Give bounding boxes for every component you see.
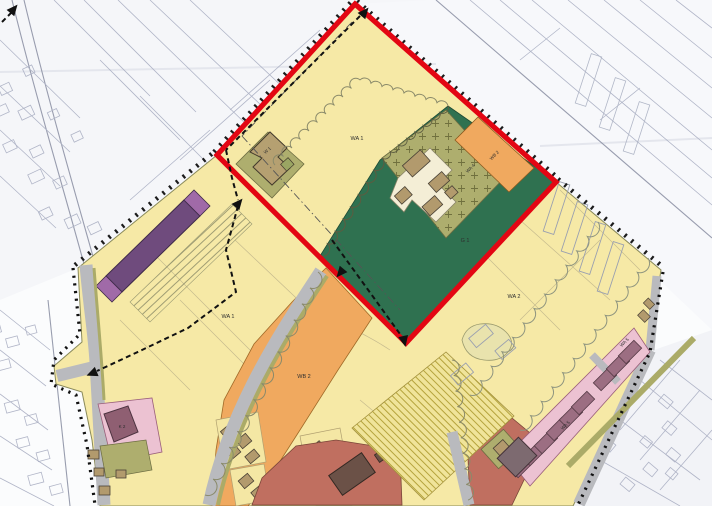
label-k2: K 2 <box>119 424 126 429</box>
label-wa1-main: WA 1 <box>222 314 235 320</box>
label-wb2-main: WB 2 <box>297 374 310 380</box>
label-wa1-red: WA 1 <box>351 136 364 142</box>
label-wa2: WA 2 <box>508 294 521 300</box>
zoning-plan-map: WA 1 W 1 WA 4 G 1 WB 2 WA 1 WA 2 WB 2 WA… <box>0 0 712 506</box>
label-g1: G 1 <box>461 238 470 244</box>
screenshot-root: WA 1 W 1 WA 4 G 1 WB 2 WA 1 WA 2 WB 2 WA… <box>0 0 712 506</box>
